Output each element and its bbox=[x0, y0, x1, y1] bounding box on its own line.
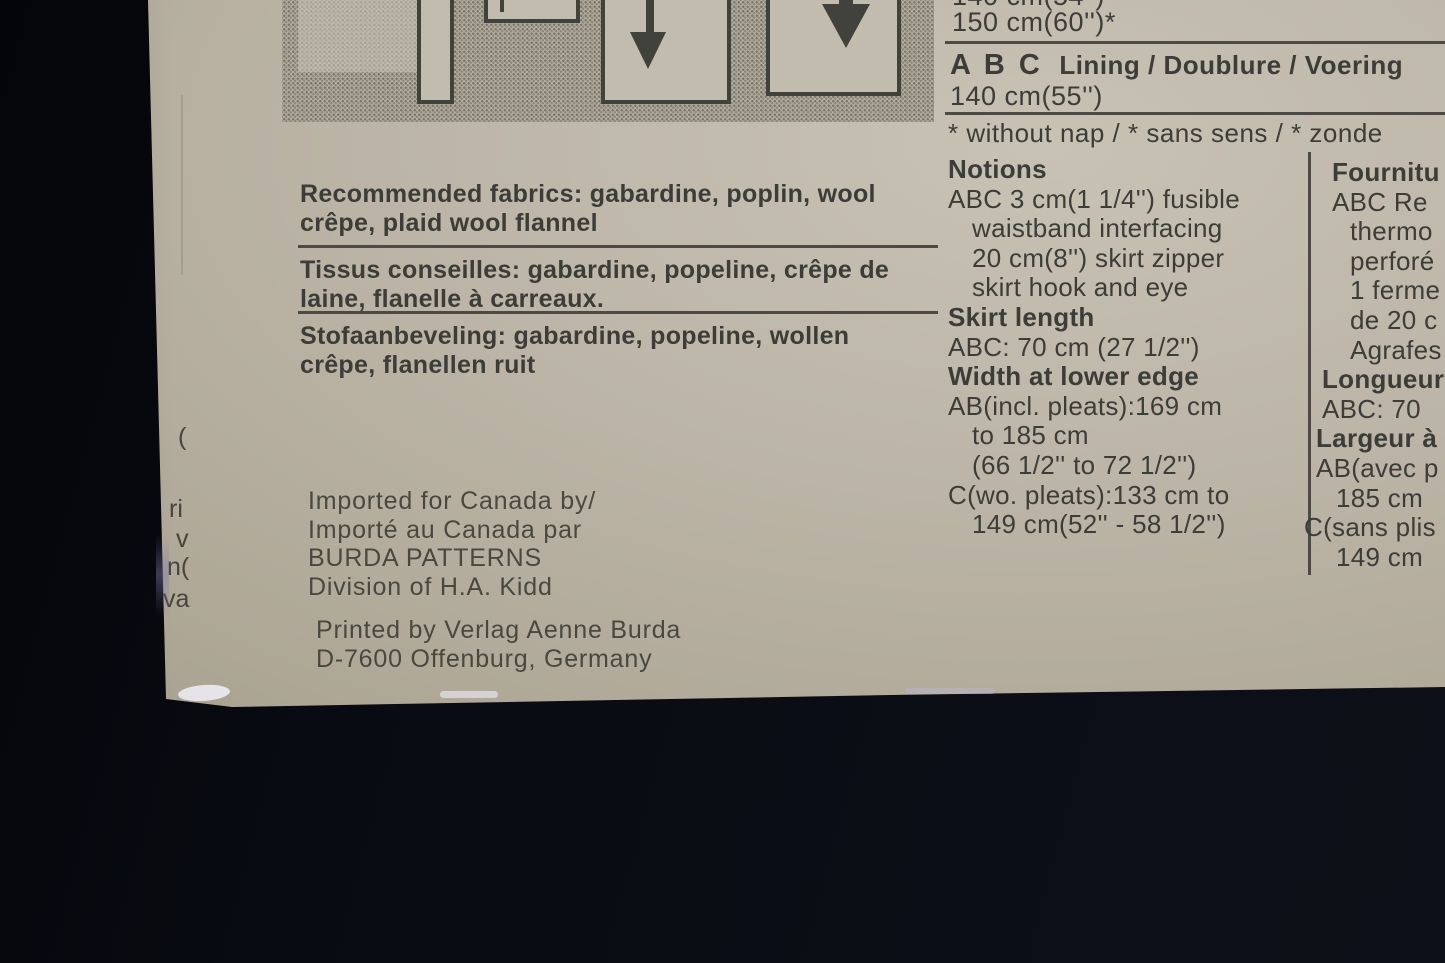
fabrics-rule-2 bbox=[298, 311, 938, 314]
notions-column: Notions ABC 3 cm(1 1/4'') fusible waistb… bbox=[948, 155, 1240, 540]
printer-block: Printed by Verlag Aenne Burda D-7600 Off… bbox=[316, 616, 681, 673]
skirt-length-value: ABC: 70 cm (27 1/2'') bbox=[948, 333, 1240, 363]
fabrics-fr-line2: laine, flanelle à carreaux. bbox=[300, 285, 889, 314]
fournitures-line: de 20 c bbox=[1302, 306, 1445, 336]
importer-block: Imported for Canada by/ Importé au Canad… bbox=[308, 487, 596, 601]
fournitures-line: 1 ferme bbox=[1302, 276, 1445, 306]
largeur-c-value: C(sans plis bbox=[1302, 513, 1445, 543]
paper-crease bbox=[181, 95, 183, 275]
width-c-value: C(wo. pleats):133 cm to bbox=[948, 481, 1240, 511]
fabrics-en-line2: crêpe, plaid wool flannel bbox=[300, 209, 876, 238]
notions-line: 20 cm(8'') skirt zipper bbox=[948, 244, 1240, 274]
largeur-heading: Largeur à bbox=[1302, 424, 1445, 454]
longueur-value: ABC: 70 bbox=[1302, 395, 1445, 425]
yardage-width-150: 150 cm(60'')* bbox=[952, 7, 1116, 38]
notions-heading: Notions bbox=[948, 155, 1240, 185]
edge-fragment: v bbox=[176, 525, 189, 554]
plastic-sheen bbox=[156, 535, 169, 615]
fournitures-line: ABC Re bbox=[1302, 188, 1445, 218]
fabrics-nl-line1: Stofaanbeveling: gabardine, popeline, wo… bbox=[300, 322, 849, 351]
notions-line: ABC 3 cm(1 1/4'') fusible bbox=[948, 185, 1240, 215]
grainline-arrow-head-2-icon bbox=[822, 4, 870, 48]
edge-fragment: ( bbox=[178, 423, 186, 452]
width-ab-value: AB(incl. pleats):169 cm bbox=[948, 392, 1240, 422]
printer-line1: Printed by Verlag Aenne Burda bbox=[316, 616, 681, 645]
fournitures-line: thermo bbox=[1302, 217, 1445, 247]
longueur-heading: Longueur bbox=[1302, 365, 1445, 395]
width-ab-inches: (66 1/2'' to 72 1/2'') bbox=[948, 451, 1240, 481]
fabrics-rule-1 bbox=[298, 245, 938, 248]
largeur-c-value-2: 149 cm bbox=[1302, 543, 1445, 573]
importer-line4: Division of H.A. Kidd bbox=[308, 573, 596, 602]
importer-line3: BURDA PATTERNS bbox=[308, 544, 596, 573]
fabrics-nl-line2: crêpe, flanellen ruit bbox=[300, 351, 849, 380]
plastic-glint bbox=[440, 691, 498, 698]
waistband-strip-piece bbox=[417, 0, 454, 104]
fabrics-english: Recommended fabrics: gabardine, poplin, … bbox=[300, 180, 876, 238]
table-rule-2 bbox=[945, 112, 1445, 115]
photo-backdrop: 140 cm(54'') 150 cm(60'')* A B C Lining … bbox=[0, 0, 1445, 963]
lining-width: 140 cm(55'') bbox=[950, 81, 1103, 112]
fabrics-fr-line1: Tissus conseilles: gabardine, popeline, … bbox=[300, 256, 889, 285]
notions-line: waistband interfacing bbox=[948, 214, 1240, 244]
edge-fragment: ri bbox=[169, 495, 183, 524]
skirt-length-heading: Skirt length bbox=[948, 303, 1240, 333]
fournitures-line: perforé bbox=[1302, 247, 1445, 277]
fournitures-heading: Fournitu bbox=[1302, 158, 1445, 188]
notions-line: skirt hook and eye bbox=[948, 273, 1240, 303]
table-rule-1 bbox=[945, 41, 1445, 44]
fabrics-en-line1: Recommended fabrics: gabardine, poplin, … bbox=[300, 180, 876, 209]
width-ab-value-2: to 185 cm bbox=[948, 421, 1240, 451]
grainline-arrow-shaft bbox=[646, 0, 654, 34]
fabrics-french: Tissus conseilles: gabardine, popeline, … bbox=[300, 256, 889, 314]
layout-light-patch bbox=[298, 0, 426, 72]
fournitures-line: Agrafes bbox=[1302, 336, 1445, 366]
lining-label: Lining / Doublure / Voering bbox=[1059, 50, 1403, 80]
lining-row: A B C Lining / Doublure / Voering bbox=[950, 49, 1403, 82]
small-facing-piece bbox=[484, 0, 580, 23]
grainline-arrow-head-icon bbox=[630, 32, 666, 69]
notch-mark bbox=[500, 0, 504, 12]
plastic-glint bbox=[905, 688, 995, 694]
importer-line2: Importé au Canada par bbox=[308, 516, 596, 545]
fournitures-column: Fournitu ABC Re thermo perforé 1 ferme d… bbox=[1302, 158, 1445, 572]
largeur-ab-value: AB(avec p bbox=[1302, 454, 1445, 484]
width-c-value-2: 149 cm(52'' - 58 1/2'') bbox=[948, 510, 1240, 540]
edge-fragment: n( bbox=[167, 553, 189, 582]
lining-sizes: A B C bbox=[950, 49, 1043, 81]
width-lower-edge-heading: Width at lower edge bbox=[948, 362, 1240, 392]
importer-line1: Imported for Canada by/ bbox=[308, 487, 596, 516]
skirt-panel-piece bbox=[601, 0, 731, 104]
nap-footnote: * without nap / * sans sens / * zonde bbox=[948, 118, 1383, 149]
printer-line2: D-7600 Offenburg, Germany bbox=[316, 645, 681, 674]
fabrics-dutch: Stofaanbeveling: gabardine, popeline, wo… bbox=[300, 322, 849, 380]
largeur-ab-value-2: 185 cm bbox=[1302, 484, 1445, 514]
